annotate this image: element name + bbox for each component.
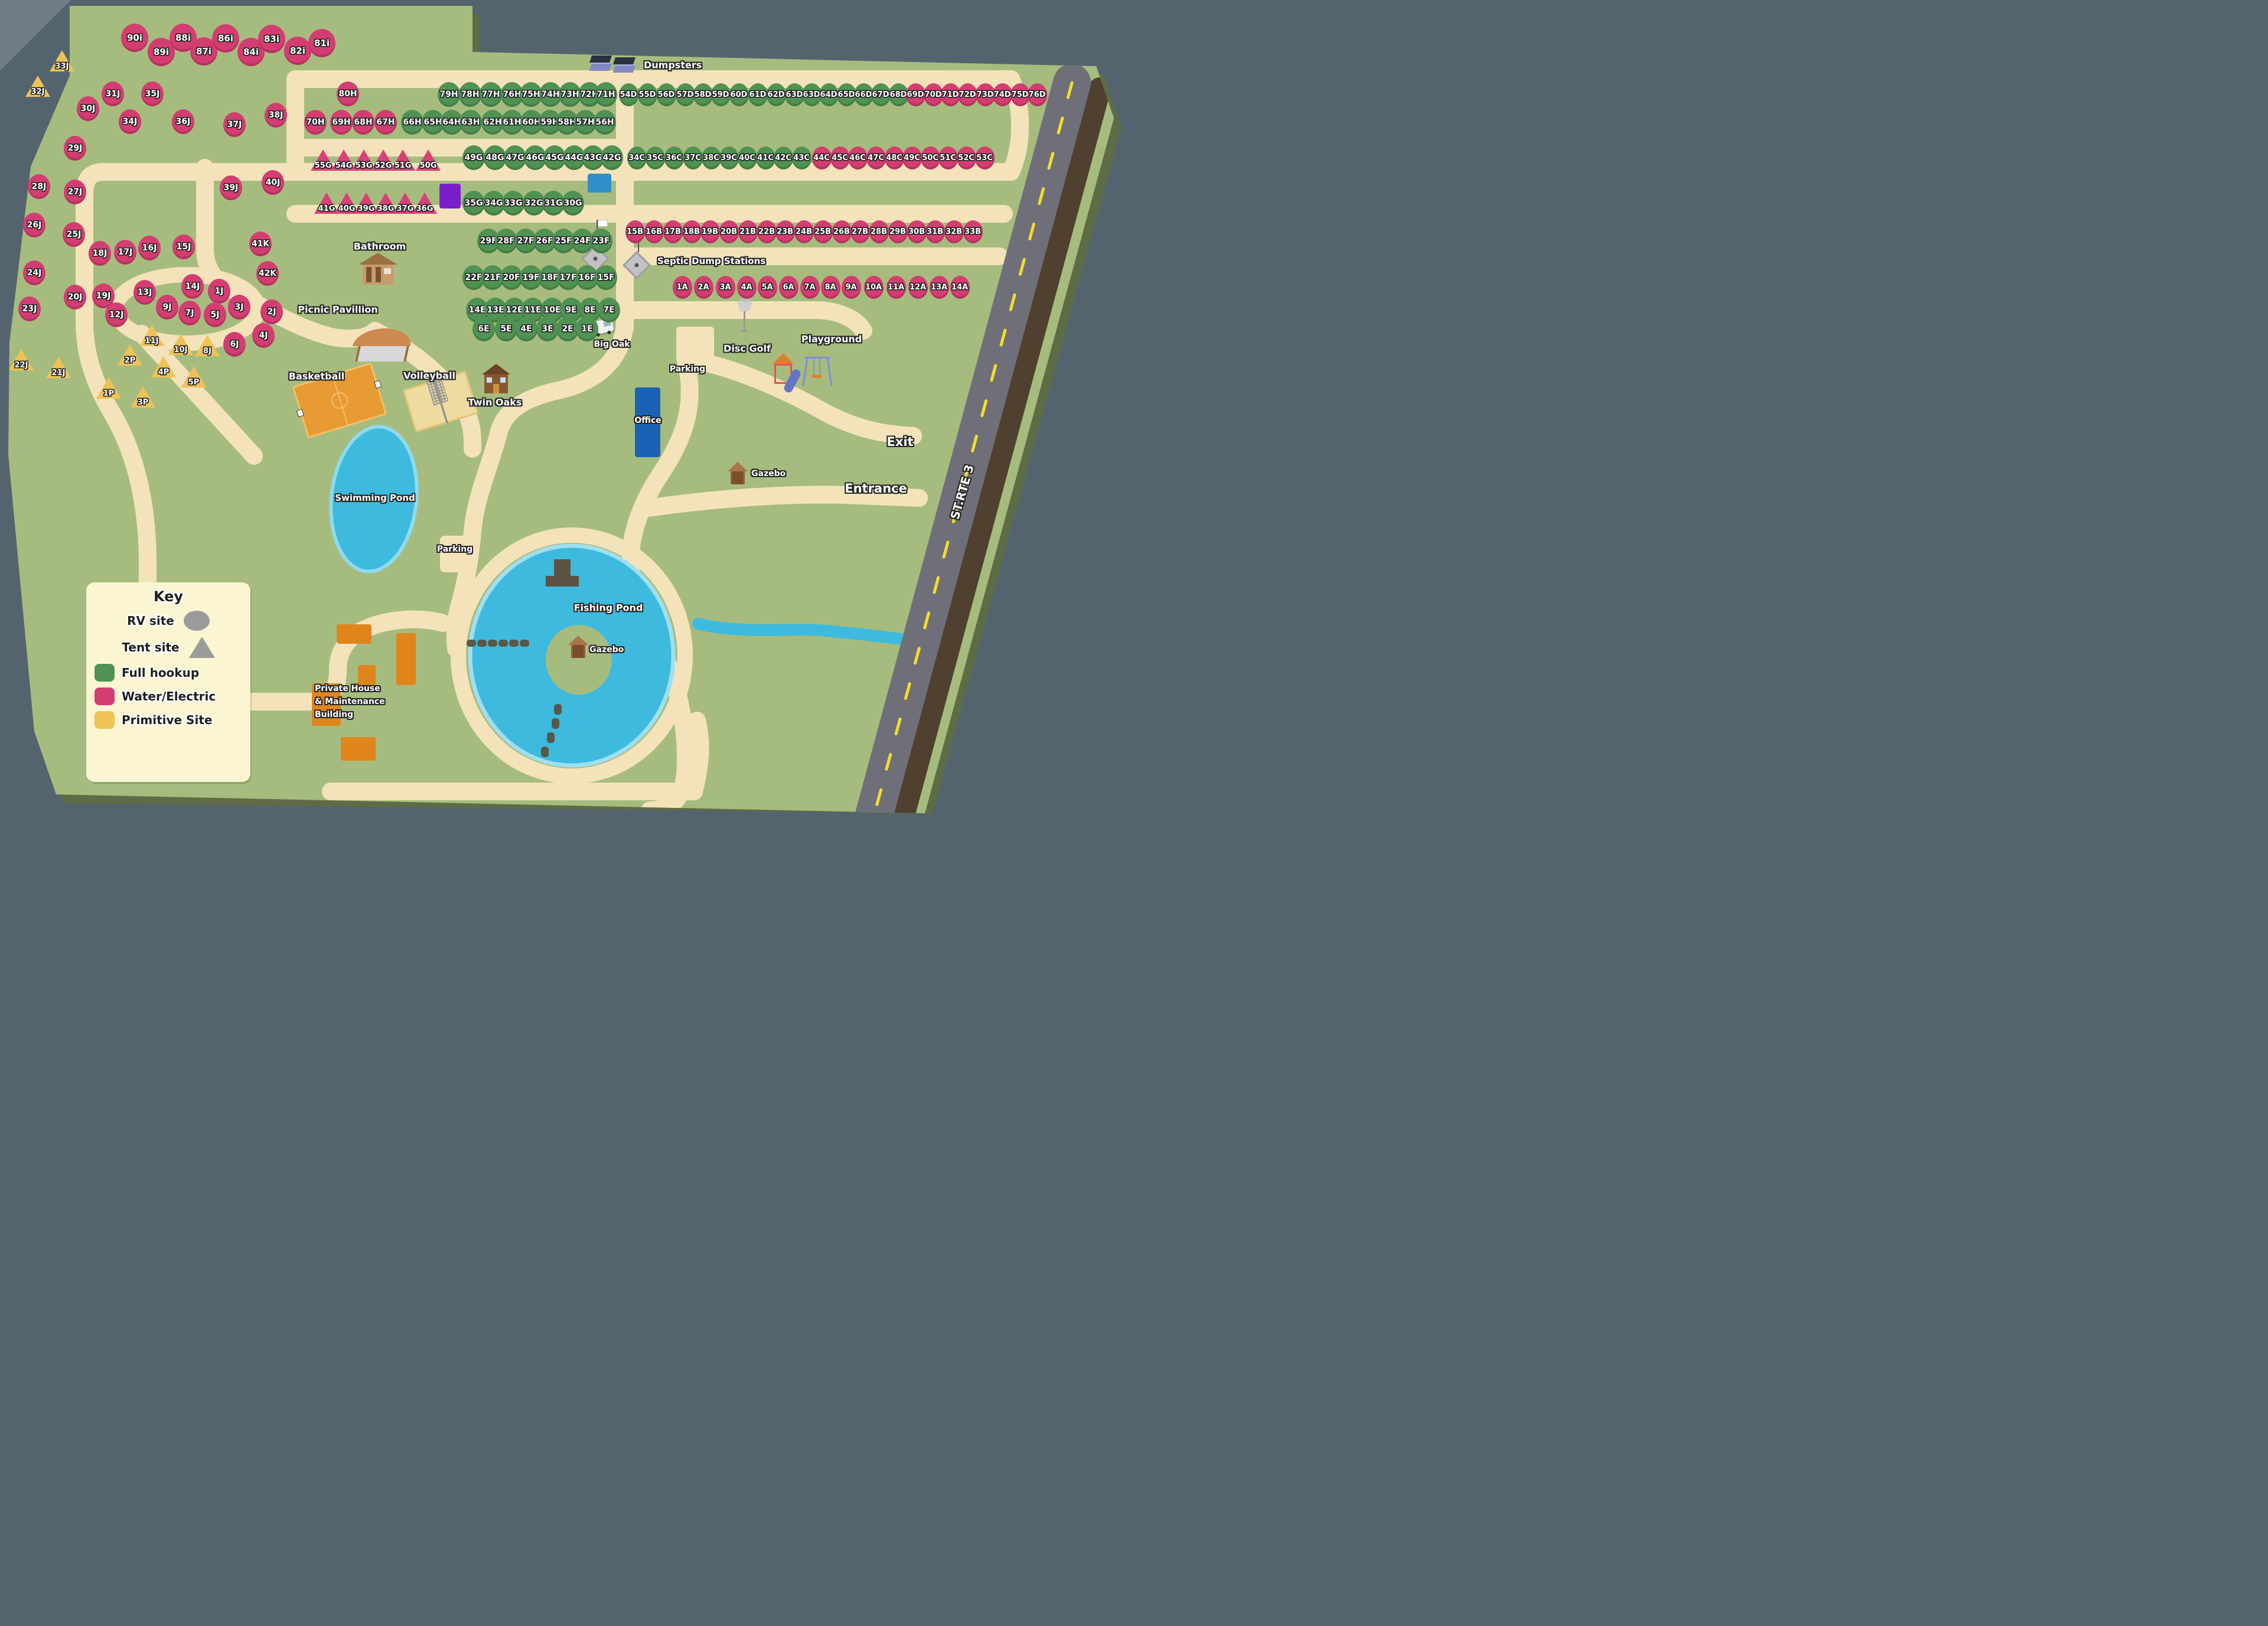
twin-oaks-cabin xyxy=(482,364,510,393)
disc-golf-basket-icon xyxy=(737,298,752,332)
site-21B: 21B xyxy=(738,220,758,243)
site-7J: 7J xyxy=(178,301,201,325)
label-disc-golf: Disc Golf xyxy=(724,343,771,354)
site-12J: 12J xyxy=(105,302,128,327)
site-48C: 48C xyxy=(885,146,904,170)
site-3A: 3A xyxy=(716,276,735,299)
site-65D: 65D xyxy=(837,83,856,106)
map-key: Key RV site Tent site Full hookup Water/… xyxy=(86,582,250,782)
site-17J: 17J xyxy=(114,240,136,265)
site-29J: 29J xyxy=(64,136,86,161)
site-38C: 38C xyxy=(702,146,721,170)
site-36J: 36J xyxy=(172,109,194,134)
site-78H: 78H xyxy=(459,82,481,107)
site-26B: 26B xyxy=(832,220,852,243)
site-72D: 72D xyxy=(958,83,977,106)
site-23B: 23B xyxy=(775,220,795,243)
water-electric-swatch xyxy=(94,687,115,705)
site-63D: 63D xyxy=(785,83,804,106)
label-septic: Septic Dump Stations xyxy=(657,256,765,266)
label-fishing-pond: Fishing Pond xyxy=(574,602,643,614)
site-46C: 46C xyxy=(848,146,868,170)
site-8A: 8A xyxy=(821,276,840,299)
site-9A: 9A xyxy=(842,276,861,299)
site-76D: 76D xyxy=(1028,83,1047,106)
site-6A: 6A xyxy=(779,276,799,299)
key-water-electric-label: Water/Electric xyxy=(122,689,216,703)
label-office: Office xyxy=(634,416,661,425)
site-33B: 33B xyxy=(963,220,983,243)
site-35J: 35J xyxy=(141,82,164,106)
label-entrance: Entrance xyxy=(845,481,907,496)
label-twin-oaks: Twin Oaks xyxy=(468,397,522,408)
full-hookup-swatch xyxy=(94,664,115,682)
site-3J: 3J xyxy=(228,295,250,320)
site-70D: 70D xyxy=(924,83,943,106)
label-big-oak: Big Oak xyxy=(594,340,630,349)
label-dumpsters: Dumpsters xyxy=(644,60,702,71)
label-exit: Exit xyxy=(887,435,913,449)
site-38J: 38J xyxy=(265,103,287,128)
site-9J: 9J xyxy=(156,295,178,320)
key-primitive-site-label: Primitive Site xyxy=(122,713,212,727)
site-23F: 23F xyxy=(590,229,612,253)
site-6J: 6J xyxy=(223,332,246,357)
site-44C: 44C xyxy=(812,146,832,170)
site-14A: 14A xyxy=(950,276,970,299)
label-gazebo-island: Gazebo xyxy=(589,645,624,654)
site-26J: 26J xyxy=(23,213,45,237)
site-73D: 73D xyxy=(976,83,995,106)
site-32B: 32B xyxy=(944,220,964,243)
site-42C: 42C xyxy=(774,146,793,170)
tent-site-icon xyxy=(189,637,215,658)
label-bathroom: Bathroom xyxy=(354,241,406,252)
site-51C: 51C xyxy=(939,146,958,170)
site-25B: 25B xyxy=(813,220,833,243)
site-5J: 5J xyxy=(204,302,226,327)
label-private-house: Building xyxy=(315,710,353,719)
site-5A: 5A xyxy=(758,276,777,299)
site-25J: 25J xyxy=(63,222,85,247)
site-66H: 66H xyxy=(401,110,423,135)
maintenance-building xyxy=(337,624,372,644)
site-39J: 39J xyxy=(220,175,242,200)
site-29B: 29B xyxy=(888,220,908,243)
site-30G: 30G xyxy=(562,191,584,216)
site-77H: 77H xyxy=(480,82,502,107)
site-1A: 1A xyxy=(673,276,692,299)
site-80H: 80H xyxy=(337,82,359,106)
site-28J: 28J xyxy=(28,174,50,199)
site-16B: 16B xyxy=(644,220,664,243)
maintenance-building xyxy=(341,737,376,761)
label-parking-north: Parking xyxy=(670,364,705,374)
site-63D: 63D xyxy=(802,83,822,106)
label-private-house: & Maintenance xyxy=(315,697,385,706)
site-35G: 35G xyxy=(462,191,485,216)
site-41K: 41K xyxy=(249,232,272,256)
site-63H: 63H xyxy=(460,110,482,135)
site-2J: 2J xyxy=(260,299,283,324)
label-parking-pond: Parking xyxy=(437,545,472,554)
road xyxy=(694,721,700,791)
site-5E: 5E xyxy=(495,317,517,341)
label-picnic-pavillion: Picnic Pavillion xyxy=(298,304,377,315)
picnic-pavillion-icon xyxy=(354,328,412,361)
site-2A: 2A xyxy=(694,276,713,299)
site-4J: 4J xyxy=(252,323,275,348)
site-58D: 58D xyxy=(693,83,713,106)
dumpster-icon xyxy=(591,56,611,71)
site-40J: 40J xyxy=(262,170,284,195)
site-83i: 83i xyxy=(258,25,285,53)
site-7E: 7E xyxy=(598,298,620,322)
key-full-hookup-label: Full hookup xyxy=(122,666,199,680)
key-title: Key xyxy=(94,588,242,605)
site-53C: 53C xyxy=(975,146,995,170)
site-28B: 28B xyxy=(869,220,889,243)
site-49G: 49G xyxy=(462,145,485,170)
site-56H: 56H xyxy=(594,110,616,135)
site-20J: 20J xyxy=(64,285,86,309)
gazebo-icon xyxy=(728,462,748,484)
label-private-house: Private House xyxy=(315,684,380,693)
site-64D: 64D xyxy=(819,83,839,106)
site-41C: 41C xyxy=(756,146,775,170)
label-gazebo-east: Gazebo xyxy=(751,469,786,478)
site-48G: 48G xyxy=(484,145,506,170)
site-68D: 68D xyxy=(889,83,908,106)
site-18J: 18J xyxy=(89,241,111,266)
site-1J: 1J xyxy=(208,279,230,304)
site-37J: 37J xyxy=(223,112,246,137)
site-43C: 43C xyxy=(792,146,812,170)
site-37C: 37C xyxy=(683,146,703,170)
site-7A: 7A xyxy=(800,276,820,299)
site-31B: 31B xyxy=(926,220,945,243)
site-55D: 55D xyxy=(638,83,657,106)
site-27B: 27B xyxy=(850,220,870,243)
site-24B: 24B xyxy=(794,220,814,243)
site-27J: 27J xyxy=(64,180,86,204)
site-69D: 69D xyxy=(906,83,926,106)
site-19B: 19B xyxy=(700,220,720,243)
campground-map: Dumpsters Bathroom Picnic Pavillion Bask… xyxy=(0,0,1134,813)
label-playground: Playground xyxy=(801,334,862,345)
maintenance-building xyxy=(396,633,416,685)
site-90i: 90i xyxy=(121,24,148,52)
site-15J: 15J xyxy=(172,234,195,259)
site-71D: 71D xyxy=(941,83,960,106)
playground-equipment-icon xyxy=(773,353,794,384)
site-34C: 34C xyxy=(627,146,647,170)
dumpster-icon xyxy=(614,57,634,73)
gazebo-icon xyxy=(568,636,588,658)
label-swimming-pond: Swimming Pond xyxy=(335,493,415,503)
label-basketball: Basketball xyxy=(289,371,344,382)
site-10A: 10A xyxy=(864,276,884,299)
site-67D: 67D xyxy=(871,83,891,106)
swing-set-icon xyxy=(804,357,830,386)
site-34J: 34J xyxy=(119,109,141,134)
bathroom-icon xyxy=(359,253,397,285)
site-82i: 82i xyxy=(284,37,311,65)
site-35C: 35C xyxy=(646,146,665,170)
site-42G: 42G xyxy=(601,145,623,170)
purple-building xyxy=(439,184,461,208)
site-68H: 68H xyxy=(352,110,374,135)
site-74D: 74D xyxy=(993,83,1012,106)
parking-lot-north xyxy=(676,327,714,362)
site-13J: 13J xyxy=(133,280,156,305)
site-14J: 14J xyxy=(181,274,204,299)
site-11A: 11A xyxy=(887,276,906,299)
site-52C: 52C xyxy=(957,146,976,170)
site-4A: 4A xyxy=(737,276,757,299)
site-3E: 3E xyxy=(536,317,559,341)
site-6E: 6E xyxy=(472,317,495,341)
site-66D: 66D xyxy=(854,83,874,106)
site-71H: 71H xyxy=(595,82,617,107)
site-20B: 20B xyxy=(719,220,739,243)
site-17B: 17B xyxy=(663,220,683,243)
site-61D: 61D xyxy=(748,83,768,106)
site-15B: 15B xyxy=(625,220,645,243)
site-57D: 57D xyxy=(676,83,695,106)
site-30J: 30J xyxy=(77,96,99,121)
site-81i: 81i xyxy=(308,29,335,57)
primitive-site-swatch xyxy=(94,711,115,729)
site-86i: 86i xyxy=(212,24,239,53)
site-50C: 50C xyxy=(921,146,940,170)
site-36C: 36C xyxy=(664,146,684,170)
site-69H: 69H xyxy=(330,110,353,135)
site-67H: 67H xyxy=(374,110,397,135)
site-59D: 59D xyxy=(711,83,731,106)
site-70H: 70H xyxy=(304,110,327,135)
site-54D: 54D xyxy=(619,83,638,106)
site-33G: 33G xyxy=(502,191,524,216)
site-62D: 62D xyxy=(767,83,786,106)
site-45C: 45C xyxy=(830,146,850,170)
site-12A: 12A xyxy=(908,276,928,299)
site-13A: 13A xyxy=(930,276,949,299)
site-15F: 15F xyxy=(595,265,617,290)
site-60D: 60D xyxy=(729,83,749,106)
key-tent-site-label: Tent site xyxy=(122,640,179,654)
site-18B: 18B xyxy=(682,220,702,243)
site-42K: 42K xyxy=(256,261,279,286)
site-56D: 56D xyxy=(657,83,676,106)
rv-site-icon xyxy=(184,611,210,631)
site-23J: 23J xyxy=(18,296,41,321)
site-79H: 79H xyxy=(438,82,460,107)
site-39C: 39C xyxy=(719,146,739,170)
site-22B: 22B xyxy=(757,220,777,243)
label-volleyball: Volleyball xyxy=(403,370,455,382)
key-rv-site-label: RV site xyxy=(127,614,174,628)
site-1E: 1E xyxy=(576,317,598,341)
pool-building xyxy=(588,174,611,193)
site-31J: 31J xyxy=(102,82,124,106)
site-40C: 40C xyxy=(738,146,757,170)
site-30B: 30B xyxy=(907,220,927,243)
site-47C: 47C xyxy=(866,146,886,170)
site-24J: 24J xyxy=(23,260,45,285)
site-16J: 16J xyxy=(138,236,161,260)
parking-lot-pond xyxy=(440,536,471,572)
site-75D: 75D xyxy=(1011,83,1030,106)
site-49C: 49C xyxy=(902,146,922,170)
site-47G: 47G xyxy=(504,145,526,170)
site-4E: 4E xyxy=(515,317,537,341)
